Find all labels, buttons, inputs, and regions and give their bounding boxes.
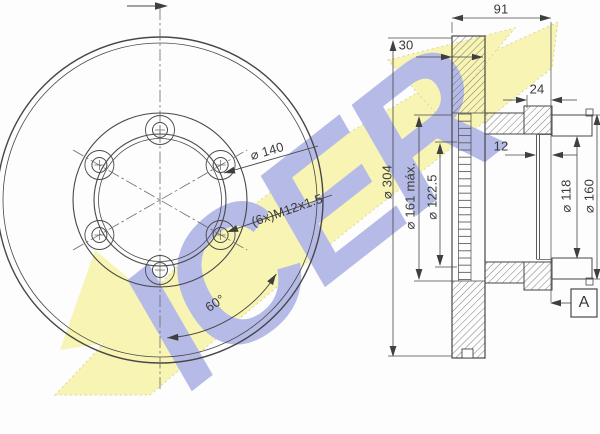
dim-disc-thickness <box>416 54 483 60</box>
label-flange-depth: 24 <box>530 83 545 96</box>
label-disc-thickness: 30 <box>399 39 414 52</box>
label-max-dia: ⌀ 161 máx. <box>404 163 417 230</box>
label-outer-dia: ⌀ 304 <box>381 165 394 199</box>
label-pilot-dia: ⌀ 122.5 <box>426 174 439 219</box>
dim-outer-dia <box>388 38 452 357</box>
label-overall-width: 91 <box>494 3 509 16</box>
front-view <box>0 2 332 392</box>
label-drum-inner-dia: ⌀ 118 <box>560 179 573 212</box>
centerlines <box>73 8 247 392</box>
dim-pilot-depth <box>505 152 577 158</box>
label-drum-outer-dia: ⌀ 160 <box>583 179 596 213</box>
technical-drawing-page: { "watermark": { "brand_text": "ICER", "… <box>0 0 600 400</box>
label-pilot-depth: 12 <box>494 140 509 153</box>
dim-drum-inner-dia <box>574 136 581 259</box>
label-detail-a: A <box>579 295 590 311</box>
dim-overall-width <box>452 15 551 33</box>
cut-direction-arrow-icon <box>127 2 168 10</box>
detail-a-callout <box>550 289 597 317</box>
